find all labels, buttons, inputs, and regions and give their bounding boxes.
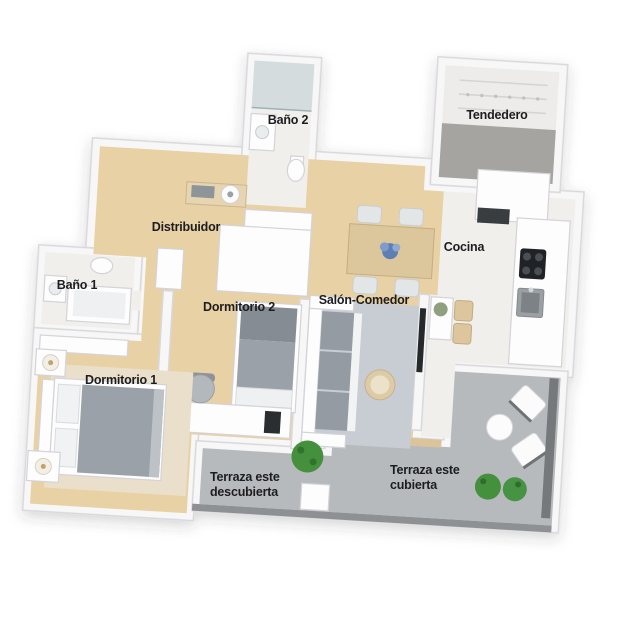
sofa-cushion-2: [318, 351, 352, 391]
bed2-duvet: [237, 339, 296, 390]
kitchen-sink-basin: [521, 292, 540, 313]
kitchen-chair-1: [454, 300, 473, 321]
room-label-dormitorio1: Dormitorio 1: [85, 373, 157, 387]
terrace-divider-box: [300, 483, 330, 511]
dining-chair-2: [399, 208, 424, 226]
console-tray: [191, 185, 215, 198]
room-label-bano1: Baño 1: [57, 278, 97, 292]
hall-closet: [155, 248, 183, 290]
room-label-salon-comedor: Salón-Comedor: [319, 293, 409, 307]
oven-vent: [477, 207, 510, 224]
terraza-cubierta-line1: Terraza este: [390, 463, 460, 478]
bano2-basin: [255, 125, 269, 139]
sofa-cushion-1: [320, 311, 354, 351]
sofa-cushion-3: [315, 391, 349, 431]
dining-chair-3: [352, 276, 377, 294]
room-label-cocina: Cocina: [444, 240, 484, 254]
doorway-bano1: [132, 291, 141, 311]
cooktop: [519, 248, 547, 280]
kitchen-chair-2: [453, 323, 472, 344]
terraza-descubierta-line1: Terraza este: [210, 470, 280, 485]
bathtub-basin: [73, 290, 126, 319]
room-label-dormitorio2: Dormitorio 2: [203, 300, 275, 314]
wardrobe: [216, 225, 311, 296]
room-label-terraza-cubierta: Terraza este cubierta: [390, 463, 460, 493]
room-label-bano2: Baño 2: [268, 113, 308, 127]
terraza-descubierta-line2: descubierta: [210, 485, 280, 500]
room-label-tendedero: Tendedero: [466, 108, 527, 122]
shower-glass: [252, 61, 315, 112]
room-label-terraza-descubierta: Terraza este descubierta: [210, 470, 280, 500]
floor-plan: Baño 2 Tendedero Distribuidor Cocina Bañ…: [0, 0, 640, 640]
monitor: [264, 411, 281, 434]
room-label-distribuidor: Distribuidor: [152, 220, 220, 234]
bed1-pillow-1: [56, 384, 80, 423]
terraza-cubierta-line2: cubierta: [390, 478, 460, 493]
doorway-dormitorio1: [143, 334, 159, 343]
floor-plan-render: [0, 0, 640, 640]
dining-chair-1: [357, 205, 382, 223]
